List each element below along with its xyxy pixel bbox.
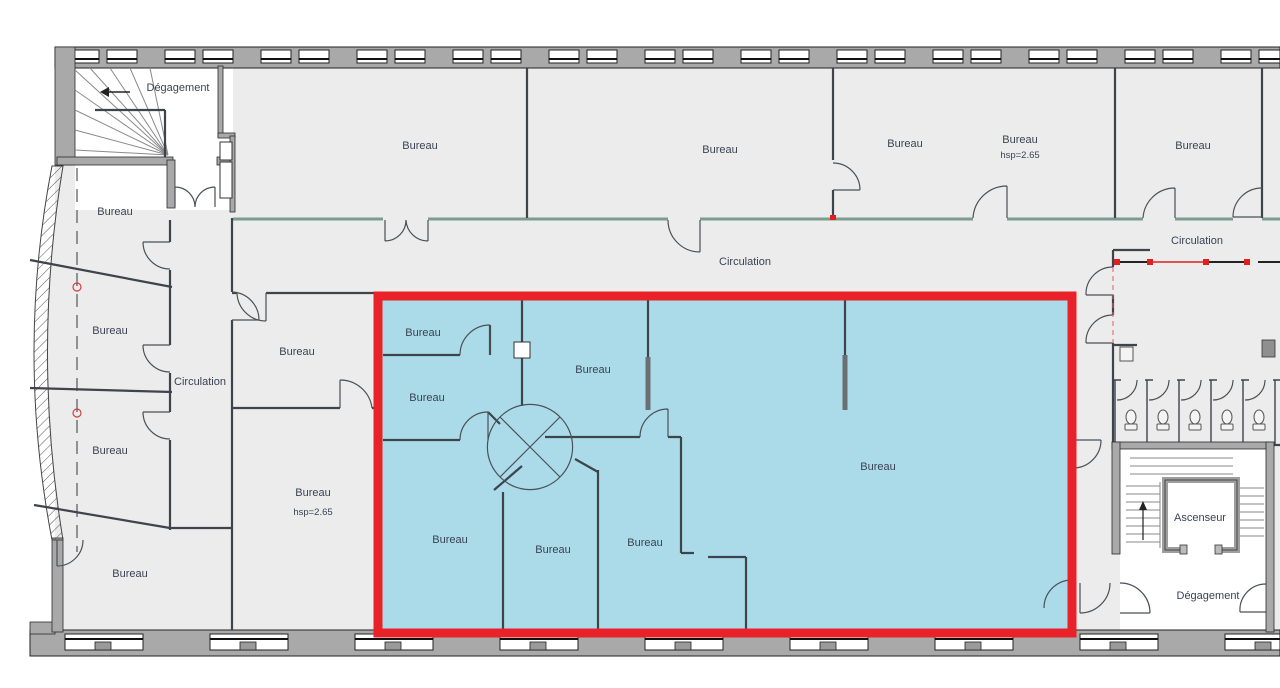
room-label-bureau-top-2: Bureau bbox=[702, 144, 737, 156]
room-label-bureau-top-5: Bureau bbox=[1175, 140, 1210, 152]
room-label-bureau-zone-2: Bureau bbox=[575, 364, 610, 376]
room-label-bureau-zone-6: Bureau bbox=[535, 544, 570, 556]
room-label-bureau-zone-1: Bureau bbox=[405, 327, 440, 339]
floor-plan: DégagementBureauBureauBureauBureauhsp=2.… bbox=[0, 0, 1280, 688]
room-label-bureau-mid-2: Bureau bbox=[295, 487, 330, 499]
room-label-degagement-nw: Dégagement bbox=[147, 82, 210, 94]
washbasin bbox=[1120, 347, 1133, 361]
room-label-bureau-west-4: Bureau bbox=[112, 568, 147, 580]
room-label-circulation-right: Circulation bbox=[1171, 235, 1223, 247]
room-label-bureau-top-3: Bureau bbox=[887, 138, 922, 150]
room-label-bureau-zone-4: Bureau bbox=[860, 461, 895, 473]
room-label-bureau-top-1: Bureau bbox=[402, 140, 437, 152]
room-label-circulation-west: Circulation bbox=[174, 376, 226, 388]
room-label-bureau-west-2: Bureau bbox=[92, 325, 127, 337]
room-label-hsp-top: hsp=2.65 bbox=[1000, 150, 1039, 161]
column bbox=[514, 342, 530, 358]
room-label-bureau-zone-7: Bureau bbox=[627, 537, 662, 549]
cabinet bbox=[220, 162, 232, 198]
room-label-ascenseur: Ascenseur bbox=[1174, 512, 1226, 524]
duct bbox=[1262, 340, 1275, 357]
room-label-circulation-main: Circulation bbox=[719, 256, 771, 268]
room-label-bureau-top-4: Bureau bbox=[1002, 134, 1037, 146]
room-label-bureau-mid-1: Bureau bbox=[279, 346, 314, 358]
room-label-hsp-mid: hsp=2.65 bbox=[293, 507, 332, 518]
room-label-bureau-zone-5: Bureau bbox=[432, 534, 467, 546]
room-label-bureau-zone-3: Bureau bbox=[409, 392, 444, 404]
cabinet bbox=[220, 142, 232, 160]
room-label-degagement-se: Dégagement bbox=[1177, 590, 1240, 602]
room-label-bureau-west-1: Bureau bbox=[97, 206, 132, 218]
highlighted-zone bbox=[378, 296, 1072, 633]
room-label-bureau-west-3: Bureau bbox=[92, 445, 127, 457]
